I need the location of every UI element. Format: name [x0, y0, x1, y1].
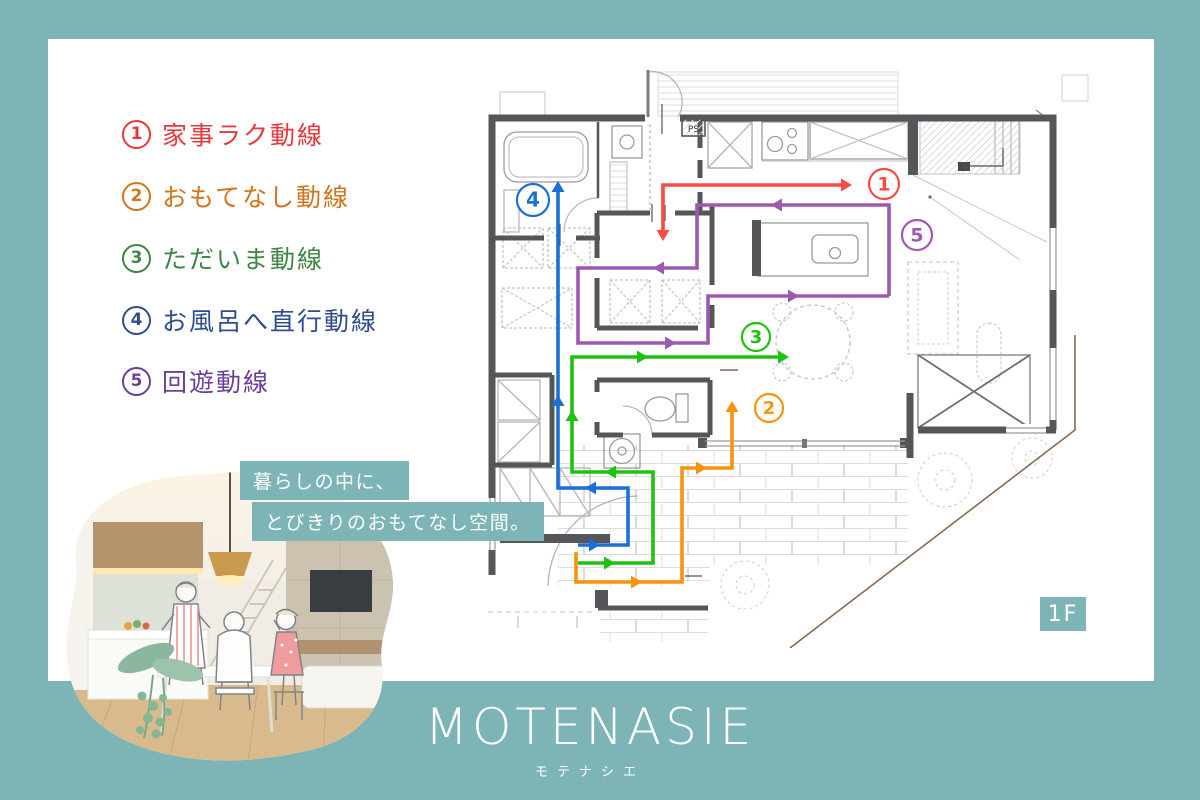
- route-3-arrowhead-icon: [566, 410, 579, 421]
- legend-number-circle: 1: [122, 120, 151, 149]
- route-3-arrowhead-icon: [778, 351, 789, 364]
- route-4-badge-number: 4: [526, 188, 540, 212]
- stove-icon: [762, 122, 808, 160]
- porch-floor: [600, 612, 708, 642]
- legend-number-circle: 3: [122, 244, 151, 273]
- legend-item-omotenashi: 2 おもてなし動線: [122, 180, 350, 212]
- bath-door-arc: [564, 198, 598, 232]
- terrace-floor: [705, 445, 908, 565]
- ps-label: PS: [688, 125, 699, 135]
- plant-icon: [918, 453, 972, 507]
- route-5-arrowhead-icon: [665, 337, 676, 350]
- kitchen-island: [758, 223, 868, 276]
- ps-shaft: PS: [682, 119, 705, 136]
- route-5-arrowhead-icon: [653, 262, 664, 275]
- brochure-page: { "palette":{ "teal":"#7db5b7", "card_bg…: [0, 0, 1200, 800]
- tv-icon: [310, 570, 372, 612]
- route-3-arrowhead-icon: [637, 351, 648, 364]
- brand-logo-kana: モテナシエ: [0, 761, 1180, 780]
- dining-table-icon: [776, 305, 850, 379]
- top-deck: [500, 72, 1088, 118]
- legend-item-ofuro: 4 お風呂へ直行動線: [122, 304, 378, 336]
- route-1-badge-number: 1: [877, 173, 890, 195]
- legend-item-kajiraku: 1 家事ラク動線: [122, 118, 324, 150]
- floor-plan-svg: PS 12345: [480, 60, 1125, 648]
- route-5-arrowhead-icon: [771, 199, 782, 212]
- legend-label: 回遊動線: [162, 363, 270, 399]
- route-1-arrowhead-icon: [657, 230, 670, 241]
- plant-icon: [1012, 438, 1052, 478]
- floor-label-badge: 1F: [1040, 597, 1086, 631]
- legend-label: お風呂へ直行動線: [162, 302, 378, 338]
- legend-label: ただいま動線: [162, 240, 324, 276]
- floor-plan: PS 12345: [480, 60, 1125, 648]
- toilet-door-arc: [623, 406, 652, 435]
- tagline-bubble-1: 暮らしの中に、: [240, 461, 409, 500]
- route-2-badge-number: 2: [763, 398, 776, 419]
- route-5-badge-number: 5: [910, 224, 923, 246]
- legend-number-circle: 5: [122, 367, 151, 396]
- legend-number-circle: 2: [122, 182, 151, 211]
- route-3-badge-number: 3: [750, 327, 763, 348]
- washbasin-icon: [612, 126, 642, 158]
- legend-item-kaiyuu: 5 回遊動線: [122, 365, 270, 397]
- sofa-illustration: [302, 666, 390, 708]
- legend-number-circle: 4: [122, 306, 151, 335]
- bathtub-icon: [504, 132, 588, 182]
- legend-label: 家事ラク動線: [162, 116, 324, 152]
- sofa-icon: [908, 262, 958, 354]
- storage-closets: [502, 228, 700, 328]
- plant-icon: [721, 561, 769, 609]
- tagline-bubble-2: とびきりのおもてなし空間。: [252, 502, 544, 541]
- route-5-arrowhead-icon: [788, 290, 799, 303]
- route-1-arrowhead-icon: [841, 179, 852, 192]
- legend-label: おもてなし動線: [162, 178, 350, 214]
- route-5-path: [578, 205, 889, 343]
- route-2-arrowhead-icon: [726, 401, 739, 412]
- legend-item-tadaima: 3 ただいま動線: [122, 242, 324, 274]
- upper-cabinet: [93, 522, 203, 568]
- toilet-icon: [645, 397, 675, 421]
- laundry-cabinet: [610, 162, 627, 212]
- lounge-chair-icon: [977, 323, 1001, 383]
- toilet-tank: [676, 394, 688, 422]
